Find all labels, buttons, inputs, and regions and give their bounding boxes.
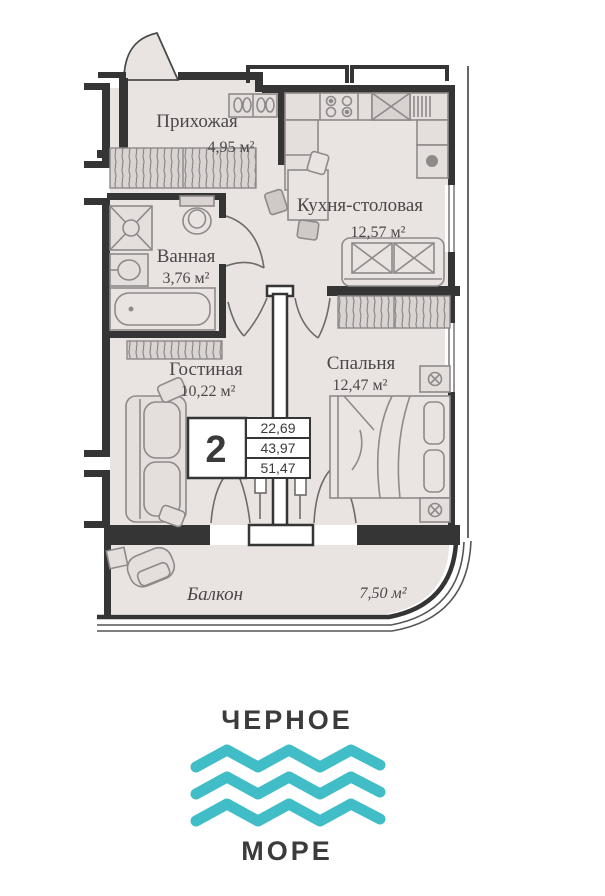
floor-plan-page: Прихожая 4,95 м² Кухня-столовая 12,57 м²… <box>0 0 605 896</box>
room-label-bathroom: Ванная <box>157 246 216 267</box>
bedroom-wardrobe <box>338 296 450 328</box>
hallway-kitchen-wall <box>278 85 285 165</box>
wave-line-1 <box>196 750 380 767</box>
badge-value-2: 43,97 <box>260 440 295 456</box>
room-area-kitchen: 12,57 м² <box>351 224 406 241</box>
entrance-door-arc <box>124 33 178 80</box>
logo-top-text: ЧЕРНОЕ <box>221 705 353 735</box>
room-area-hallway: 4,95 м² <box>208 139 255 156</box>
living-room-shelf <box>127 341 222 359</box>
room-label-living: Гостиная <box>169 359 243 380</box>
dishwasher-icon <box>417 145 448 178</box>
kitchen-sofa-icon <box>342 238 444 286</box>
room-area-bathroom: 3,76 м² <box>163 270 210 287</box>
wave-line-2 <box>196 777 380 794</box>
bed-icon <box>330 396 450 498</box>
washing-machine-icon <box>110 206 152 250</box>
room-label-bedroom: Спальня <box>327 353 396 374</box>
room-label-hallway: Прихожая <box>156 111 238 132</box>
badge-value-1: 22,69 <box>260 420 295 436</box>
bathroom-right-wall-lower <box>219 264 226 338</box>
living-sofa-icon <box>126 376 188 527</box>
top-wall-stub-right <box>352 67 447 83</box>
rooms-count: 2 <box>205 429 226 471</box>
bathtub-icon <box>110 288 215 330</box>
room-area-bedroom: 12,47 м² <box>333 377 388 394</box>
kitchen-bedroom-wall <box>327 286 460 296</box>
kitchen-window <box>445 185 458 252</box>
summary-badge: 2 22,69 43,97 51,47 <box>188 418 310 478</box>
floor-plan-canvas: Прихожая 4,95 м² Кухня-столовая 12,57 м²… <box>0 0 605 896</box>
nightstand-icon-top <box>420 366 450 392</box>
room-area-balcony: 7,50 м² <box>359 585 407 602</box>
toilet-icon <box>180 196 214 234</box>
room-label-balcony: Балкон <box>186 584 243 605</box>
sink-icon <box>110 254 148 286</box>
logo-bottom-text: МОРЕ <box>241 836 333 866</box>
black-sea-logo: ЧЕРНОЕ МОРЕ <box>196 705 380 866</box>
badge-value-3: 51,47 <box>260 460 295 476</box>
waves-icon <box>196 750 380 821</box>
wave-line-3 <box>196 804 380 821</box>
bathroom-right-wall-upper <box>219 193 226 218</box>
nightstand-icon-bottom <box>420 498 450 522</box>
room-area-living: 10,22 м² <box>181 383 236 400</box>
oven-icon <box>372 93 430 120</box>
room-label-kitchen: Кухня-столовая <box>297 195 423 216</box>
bathroom-bottom-wall <box>107 331 226 338</box>
